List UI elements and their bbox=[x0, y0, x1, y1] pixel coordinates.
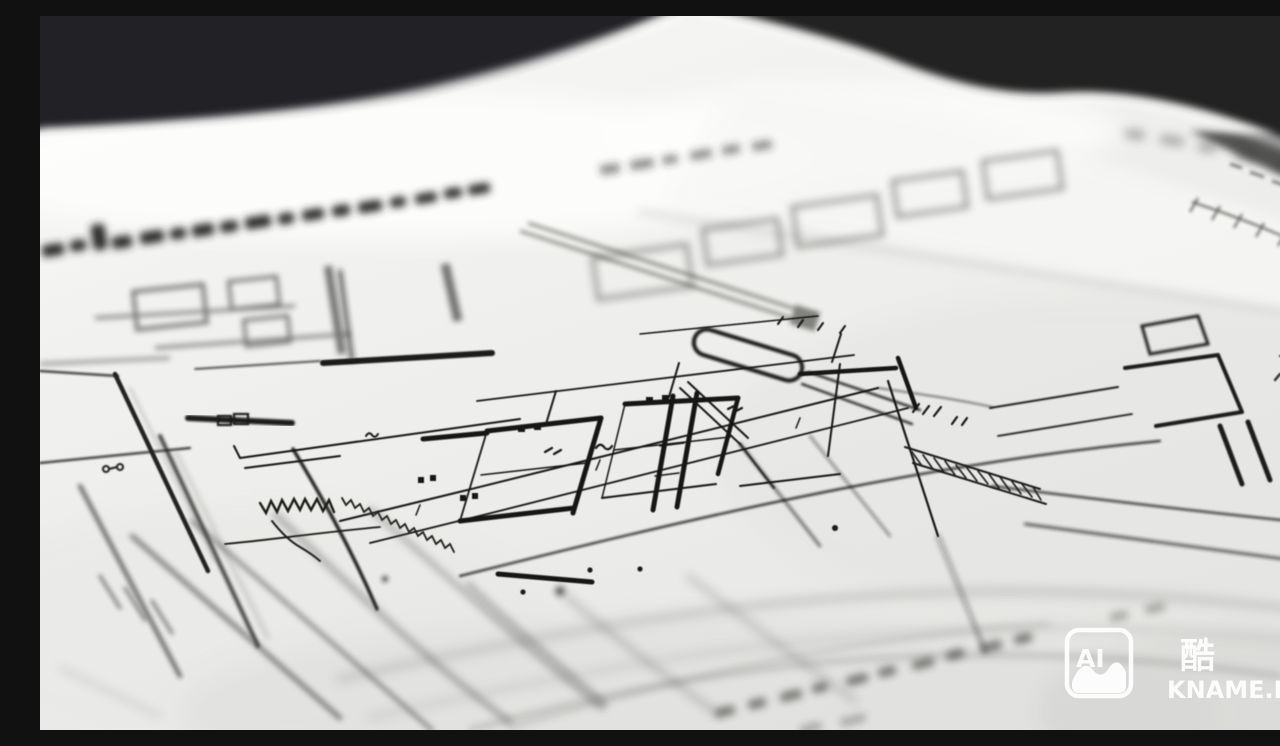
architectural-sketch-photo: AI 酷 名 KNAME.NET bbox=[40, 16, 1280, 730]
watermark-brand-name: 酷 名 bbox=[1180, 637, 1280, 677]
watermark-brand-domain: KNAME.NET bbox=[1167, 676, 1280, 704]
photo-canvas: AI 酷 名 KNAME.NET bbox=[40, 16, 1280, 730]
